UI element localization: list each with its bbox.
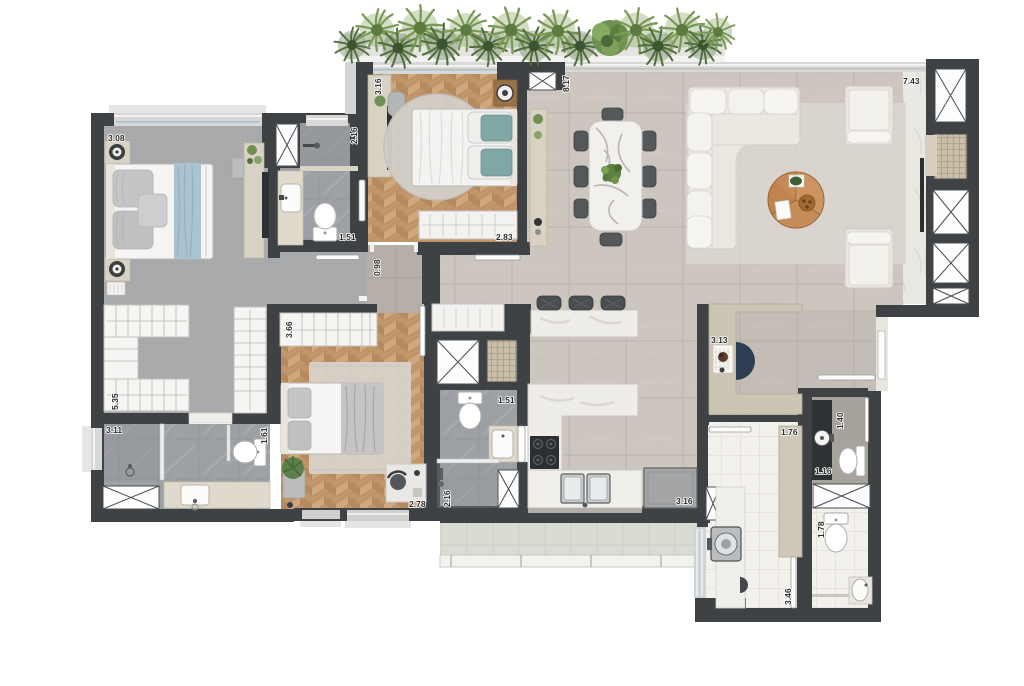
svg-text:1.51: 1.51 [339,232,356,242]
svg-text:3.46: 3.46 [783,588,793,605]
svg-text:3.13: 3.13 [711,335,728,345]
svg-text:8.17: 8.17 [561,75,571,92]
svg-text:3.16: 3.16 [676,496,693,506]
svg-text:7.43: 7.43 [903,76,920,86]
svg-text:2.16: 2.16 [442,490,452,507]
svg-text:2.78: 2.78 [409,499,426,509]
svg-text:2.83: 2.83 [496,232,513,242]
svg-text:5.35: 5.35 [110,393,120,410]
svg-text:0.98: 0.98 [372,259,382,276]
svg-text:3.66: 3.66 [284,321,294,338]
svg-text:3.16: 3.16 [373,78,383,95]
svg-text:1.78: 1.78 [816,521,826,538]
svg-text:3.08: 3.08 [108,133,125,143]
svg-text:1.61: 1.61 [259,427,269,444]
svg-text:2.16: 2.16 [349,127,359,144]
svg-text:1.51: 1.51 [498,395,515,405]
svg-text:1.76: 1.76 [781,427,798,437]
svg-text:3.11: 3.11 [106,425,122,435]
svg-text:1.16: 1.16 [815,466,832,476]
svg-text:1.40: 1.40 [835,412,845,429]
